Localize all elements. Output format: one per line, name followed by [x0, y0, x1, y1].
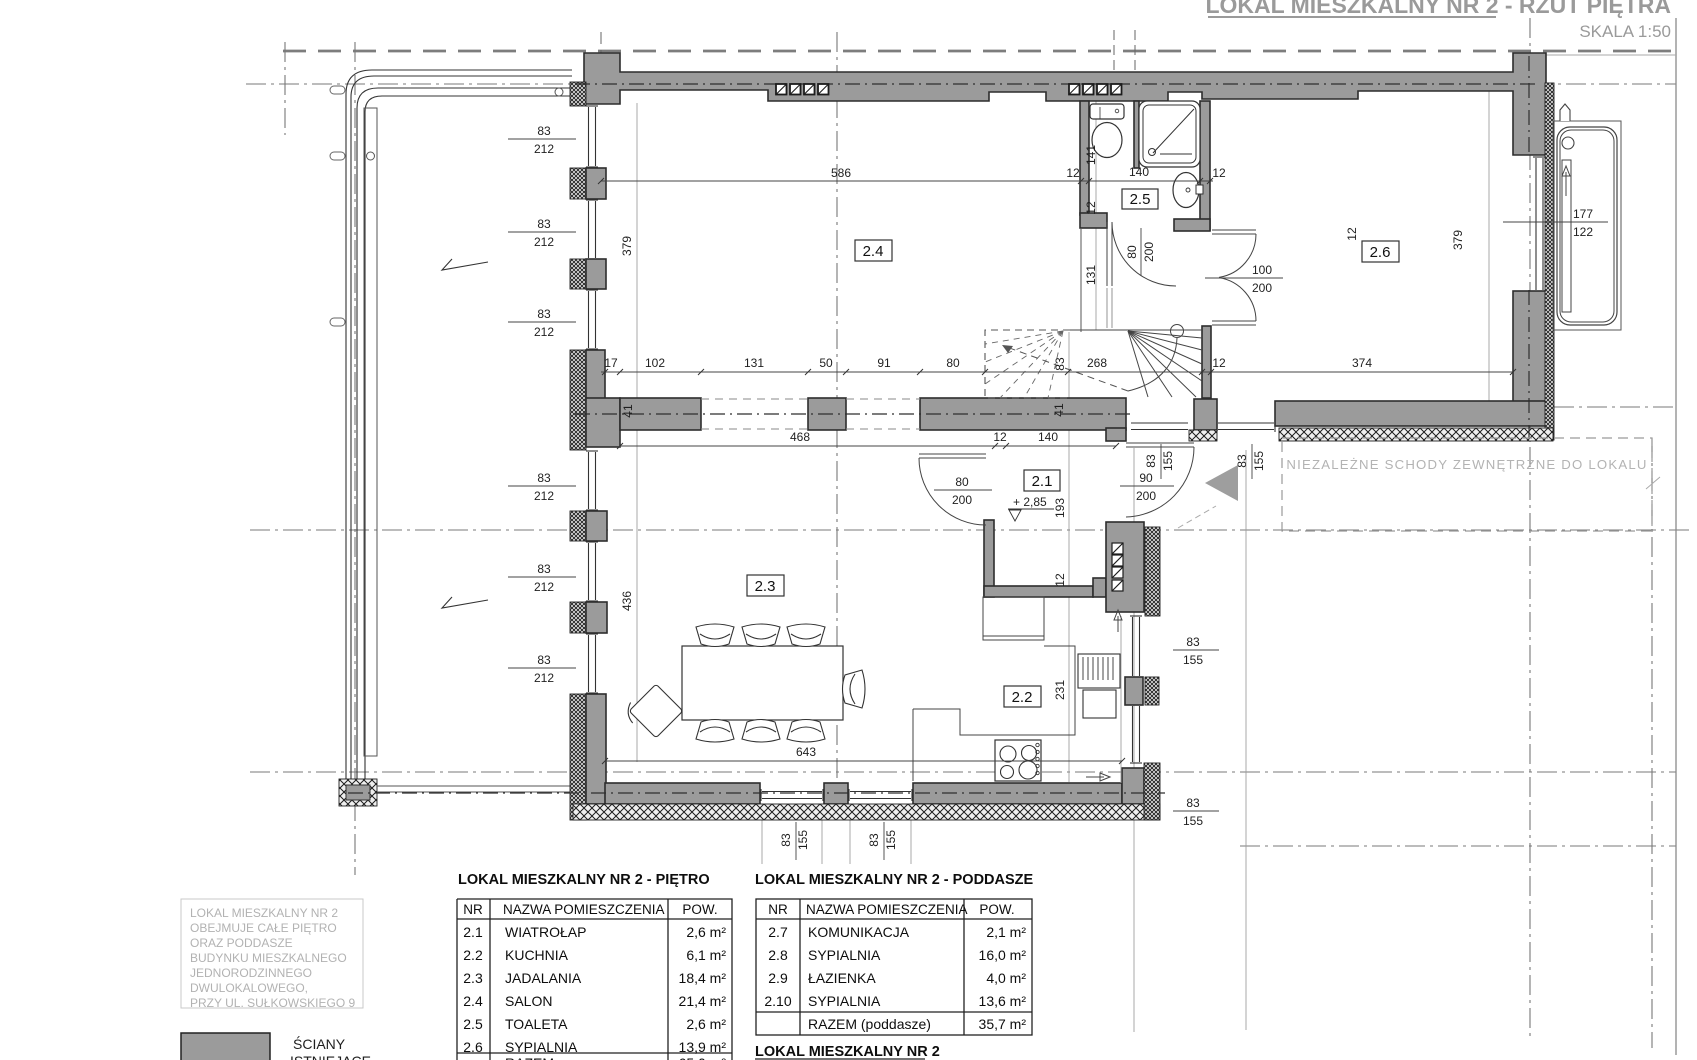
svg-text:83: 83 [779, 833, 793, 847]
svg-text:83: 83 [1186, 635, 1200, 649]
svg-text:140: 140 [1129, 165, 1149, 179]
svg-text:83: 83 [1053, 357, 1067, 371]
svg-text:468: 468 [790, 430, 810, 444]
svg-text:155: 155 [1252, 451, 1266, 471]
svg-text:KOMUNIKACJA: KOMUNIKACJA [808, 924, 910, 940]
svg-text:41: 41 [621, 404, 635, 418]
svg-text:50: 50 [819, 356, 833, 370]
svg-text:2.2: 2.2 [463, 947, 483, 963]
svg-text:POW.: POW. [979, 902, 1014, 917]
svg-text:2,6 m²: 2,6 m² [686, 924, 726, 940]
svg-text:586: 586 [831, 166, 851, 180]
svg-text:KUCHNIA: KUCHNIA [505, 947, 569, 963]
svg-text:ISTNIEJĄCE: ISTNIEJĄCE [290, 1053, 371, 1060]
svg-text:2.6: 2.6 [1370, 244, 1391, 261]
svg-text:12: 12 [1212, 166, 1226, 180]
svg-text:2.3: 2.3 [463, 970, 483, 986]
svg-text:12: 12 [1066, 166, 1080, 180]
svg-text:2.10: 2.10 [764, 993, 791, 1009]
svg-text:212: 212 [534, 235, 554, 249]
svg-text:2.3: 2.3 [755, 578, 776, 595]
svg-text:NIEZALEŻNE SCHODY ZEWNĘTRZNE D: NIEZALEŻNE SCHODY ZEWNĘTRZNE DO LOKALU [1286, 457, 1647, 472]
svg-text:13,6 m²: 13,6 m² [979, 993, 1027, 1009]
svg-text:2.8: 2.8 [768, 947, 788, 963]
svg-text:155: 155 [884, 830, 898, 850]
svg-text:140: 140 [1038, 430, 1058, 444]
svg-text:21,4 m²: 21,4 m² [679, 993, 727, 1009]
svg-text:DWULOKALOWEGO,: DWULOKALOWEGO, [190, 981, 308, 995]
svg-text:SKALA 1:50: SKALA 1:50 [1579, 22, 1671, 41]
svg-text:18,4 m²: 18,4 m² [679, 970, 727, 986]
svg-text:2.1: 2.1 [1032, 473, 1053, 490]
svg-text:80: 80 [955, 475, 969, 489]
svg-text:LOKAL MIESZKALNY NR 2: LOKAL MIESZKALNY NR 2 [190, 906, 338, 920]
svg-text:643: 643 [796, 745, 816, 759]
svg-text:83: 83 [1144, 454, 1158, 468]
svg-text:436: 436 [620, 591, 634, 611]
svg-text:155: 155 [796, 830, 810, 850]
svg-text:83: 83 [537, 124, 551, 138]
svg-text:200: 200 [952, 493, 972, 507]
svg-text:BUDYNKU MIESZKALNEGO: BUDYNKU MIESZKALNEGO [190, 951, 347, 965]
svg-text:2.2: 2.2 [1012, 689, 1033, 706]
svg-text:13,9 m²: 13,9 m² [679, 1039, 727, 1055]
svg-text:83: 83 [537, 217, 551, 231]
svg-text:193: 193 [1053, 498, 1067, 518]
svg-text:83: 83 [1235, 454, 1249, 468]
svg-text:SYPIALNIA: SYPIALNIA [808, 993, 881, 1009]
svg-text:12: 12 [1345, 227, 1359, 241]
svg-text:LOKAL MIESZKALNY NR 2 - PODDAS: LOKAL MIESZKALNY NR 2 - PODDASZE [755, 872, 1034, 888]
svg-text:379: 379 [1451, 230, 1465, 250]
svg-text:65,0 m²: 65,0 m² [679, 1055, 727, 1060]
svg-text:ORAZ PODDASZE: ORAZ PODDASZE [190, 936, 293, 950]
svg-text:200: 200 [1252, 281, 1272, 295]
svg-text:41: 41 [1052, 403, 1066, 417]
svg-text:4,0 m²: 4,0 m² [986, 970, 1026, 986]
svg-text:2,1 m²: 2,1 m² [986, 924, 1026, 940]
svg-text:OBEJMUJE CAŁE PIĘTRO: OBEJMUJE CAŁE PIĘTRO [190, 921, 337, 935]
svg-text:ŚCIANY: ŚCIANY [293, 1035, 346, 1052]
svg-text:212: 212 [534, 142, 554, 156]
svg-text:LOKAL MIESZKALNY NR 2 - RZUT P: LOKAL MIESZKALNY NR 2 - RZUT PIĘTRA [1205, 0, 1671, 18]
svg-text:122: 122 [1573, 225, 1593, 239]
svg-text:ŁAZIENKA: ŁAZIENKA [808, 970, 876, 986]
svg-text:35,7 m²: 35,7 m² [979, 1016, 1027, 1032]
svg-text:NR: NR [768, 902, 788, 917]
svg-text:2.1: 2.1 [463, 924, 483, 940]
svg-text:2.4: 2.4 [863, 243, 884, 260]
svg-text:83: 83 [537, 653, 551, 667]
svg-text:2,6 m²: 2,6 m² [686, 1016, 726, 1032]
svg-text:12: 12 [1053, 573, 1067, 587]
svg-text:2.5: 2.5 [463, 1016, 483, 1032]
svg-text:200: 200 [1136, 489, 1156, 503]
svg-text:12: 12 [993, 430, 1007, 444]
svg-text:83: 83 [537, 562, 551, 576]
svg-text:231: 231 [1053, 680, 1067, 700]
svg-text:155: 155 [1161, 451, 1175, 471]
svg-text:379: 379 [620, 236, 634, 256]
svg-text:374: 374 [1352, 356, 1372, 370]
svg-text:212: 212 [534, 325, 554, 339]
svg-text:212: 212 [534, 580, 554, 594]
svg-text:200: 200 [1142, 242, 1156, 262]
svg-text:SALON: SALON [505, 993, 552, 1009]
svg-text:83: 83 [1186, 796, 1200, 810]
svg-text:141: 141 [1084, 145, 1098, 165]
svg-text:83: 83 [867, 833, 881, 847]
svg-text:17: 17 [604, 356, 618, 370]
svg-text:131: 131 [744, 356, 764, 370]
svg-text:2.6: 2.6 [463, 1039, 483, 1055]
svg-text:LOKAL MIESZKALNY NR 2: LOKAL MIESZKALNY NR 2 [755, 1044, 940, 1060]
svg-text:212: 212 [534, 671, 554, 685]
svg-text:16,0 m²: 16,0 m² [979, 947, 1027, 963]
svg-text:WIATROŁAP: WIATROŁAP [505, 924, 586, 940]
svg-text:83: 83 [537, 307, 551, 321]
svg-text:NAZWA POMIESZCZENIA: NAZWA POMIESZCZENIA [503, 902, 665, 917]
svg-text:NAZWA POMIESZCZENIA: NAZWA POMIESZCZENIA [806, 902, 968, 917]
svg-text:90: 90 [1139, 471, 1153, 485]
svg-text:80: 80 [946, 356, 960, 370]
svg-text:NR: NR [463, 902, 483, 917]
svg-text:102: 102 [645, 356, 665, 370]
svg-text:100: 100 [1252, 263, 1272, 277]
svg-text:POW.: POW. [682, 902, 717, 917]
svg-text:155: 155 [1183, 653, 1203, 667]
svg-text:PRZY UL. SUŁKOWSKIEGO 9: PRZY UL. SUŁKOWSKIEGO 9 [190, 996, 355, 1010]
svg-text:83: 83 [537, 471, 551, 485]
svg-text:177: 177 [1573, 207, 1593, 221]
svg-text:JEDNORODZINNEGO: JEDNORODZINNEGO [190, 966, 312, 980]
svg-text:RAZEM: RAZEM [505, 1055, 554, 1060]
svg-text:TOALETA: TOALETA [505, 1016, 568, 1032]
svg-text:LOKAL MIESZKALNY NR 2 - PIĘTRO: LOKAL MIESZKALNY NR 2 - PIĘTRO [458, 872, 710, 888]
svg-text:SYPIALNIA: SYPIALNIA [808, 947, 881, 963]
svg-text:SYPIALNIA: SYPIALNIA [505, 1039, 578, 1055]
svg-text:2.9: 2.9 [768, 970, 788, 986]
svg-text:131: 131 [1084, 265, 1098, 285]
svg-text:12: 12 [1212, 356, 1226, 370]
svg-text:80: 80 [1125, 245, 1139, 259]
svg-text:268: 268 [1087, 356, 1107, 370]
svg-text:12: 12 [1084, 201, 1098, 215]
svg-text:2.7: 2.7 [768, 924, 788, 940]
svg-text:91: 91 [877, 356, 891, 370]
svg-text:6,1 m²: 6,1 m² [686, 947, 726, 963]
svg-text:RAZEM (poddasze): RAZEM (poddasze) [808, 1016, 931, 1032]
svg-text:212: 212 [534, 489, 554, 503]
svg-text:155: 155 [1183, 814, 1203, 828]
svg-text:JADALANIA: JADALANIA [505, 970, 582, 986]
svg-text:2.4: 2.4 [463, 993, 483, 1009]
svg-text:+ 2,85: + 2,85 [1013, 495, 1047, 509]
svg-text:2.5: 2.5 [1130, 191, 1151, 208]
